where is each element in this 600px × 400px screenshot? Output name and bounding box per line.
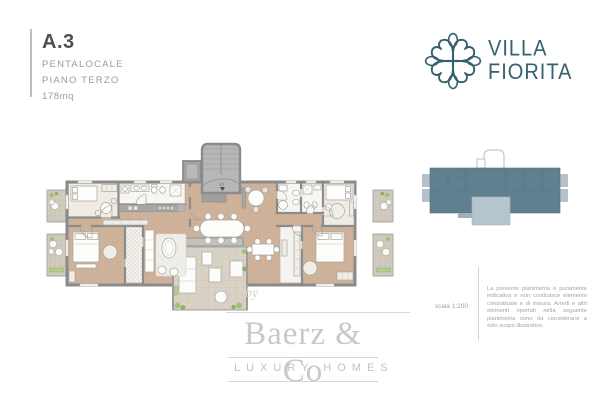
elevator-car (186, 164, 198, 179)
building-key-plan (420, 148, 570, 238)
stairwell: A.3 (202, 144, 240, 193)
brand-name-line2: FIORITA (488, 61, 572, 85)
living-room (145, 230, 186, 276)
brand-name-line1: VILLA (488, 37, 572, 61)
key-plan-terrace (472, 197, 510, 225)
floor-plan: A.3 (40, 140, 400, 320)
watermark-tagline: LUXURY HOMES (228, 362, 378, 374)
unit-info-rule (30, 29, 32, 97)
brochure-page: A.3 PENTALOCALE PIANO TERZO 178mq (0, 0, 600, 400)
balcony-right-top (373, 190, 393, 222)
hall-sideboard (202, 195, 226, 202)
legend-rule (478, 267, 479, 340)
balcony-left-bottom (47, 234, 67, 276)
entry-label: A.3 (219, 183, 224, 187)
unit-area: 178mq (42, 91, 74, 102)
brand-logo: VILLA FIORITA (424, 32, 572, 90)
unit-label: A.3 (42, 31, 75, 54)
watermark-rule-mid (228, 357, 378, 358)
hall-cabinet (103, 220, 148, 225)
kitchen (119, 205, 185, 212)
flower-knot-icon (424, 32, 482, 90)
key-plan-side-terrace (458, 213, 472, 218)
brand-name: VILLA FIORITA (488, 37, 572, 84)
watermark-by: by (245, 286, 258, 302)
balcony-right-bottom (373, 234, 393, 276)
key-plan-stairwell (484, 150, 504, 168)
scale-label: scala 1:200 (418, 303, 468, 310)
balcony-left-top (47, 190, 67, 222)
unit-floor: PIANO TERZO (42, 75, 119, 86)
unit-type: PENTALOCALE (42, 59, 124, 70)
watermark-rule-bot (228, 381, 378, 382)
watermark-rule-top (226, 312, 410, 313)
disclaimer-text: La presente planimetria è puramente indi… (487, 286, 587, 330)
watermark-name: Baerz & Co (222, 316, 384, 390)
